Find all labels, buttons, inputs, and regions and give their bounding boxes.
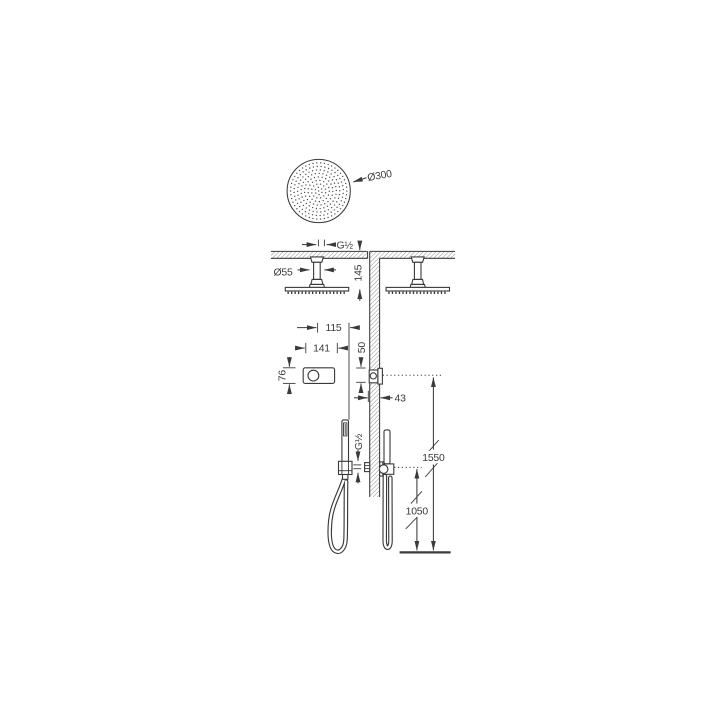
recess-depth-label: 43 xyxy=(395,394,407,405)
rain-head-side-elevation xyxy=(386,257,449,293)
handshower-stick-side xyxy=(384,430,390,464)
ceiling-thread-label: G½ xyxy=(337,241,354,252)
dim-control-height: 76 xyxy=(277,357,295,394)
diameter-leader-line xyxy=(353,178,366,182)
control-trim-plate xyxy=(378,368,383,384)
dim-arm-drop: 145 xyxy=(353,241,364,301)
technical-drawing-page: Ø300 G½ 145 Ø55 xyxy=(0,0,720,720)
dim-control-height-floor: 1550 xyxy=(421,377,446,550)
holder-knob xyxy=(379,465,388,474)
rain-head-front-elevation xyxy=(285,257,348,293)
dim-ceiling-thread: G½ xyxy=(302,240,353,252)
dim-escutcheon-diameter: Ø55 xyxy=(274,267,337,278)
control-offset-label: 115 xyxy=(326,323,342,334)
rain-head-diameter-label: Ø300 xyxy=(367,169,394,184)
control-unit-front xyxy=(303,368,334,384)
dim-outlet-spacing: 50 xyxy=(356,342,368,393)
control-height-label: 76 xyxy=(277,370,288,382)
hose-connector xyxy=(343,475,348,480)
nozzle-dot-pattern xyxy=(290,162,348,219)
outlet-spacing-label: 50 xyxy=(357,342,368,354)
handshower-thread-label: G½ xyxy=(354,433,365,450)
rain-head-top-view: Ø300 xyxy=(287,159,393,222)
control-knob xyxy=(308,370,319,381)
handshower-front xyxy=(330,420,352,552)
control-knob-side xyxy=(370,373,376,379)
control-width-label: 141 xyxy=(313,344,330,355)
dim-control-width: 141 xyxy=(295,343,348,355)
handshower-side xyxy=(379,430,393,548)
shower-dimension-diagram: Ø300 G½ 145 Ø55 xyxy=(0,0,720,720)
dim-handshower-thread: G½ xyxy=(353,433,365,483)
dim-handshower-height-floor: 1050 xyxy=(394,467,429,550)
wall-outlet-elbow xyxy=(365,463,370,472)
control-unit-side xyxy=(369,368,441,384)
escutcheon-diameter-label: Ø55 xyxy=(274,267,293,278)
handshower-holder-front xyxy=(339,461,353,474)
arm-drop-label: 145 xyxy=(353,264,364,281)
handshower-height-floor-label: 1050 xyxy=(406,507,429,518)
control-height-floor-label: 1550 xyxy=(422,453,445,464)
